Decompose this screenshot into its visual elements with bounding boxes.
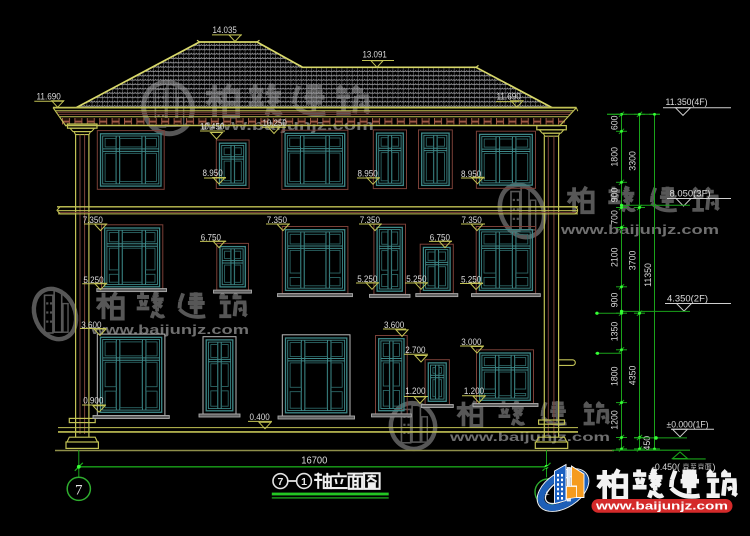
svg-text:1350: 1350: [610, 322, 620, 342]
svg-text:16700: 16700: [301, 456, 327, 467]
svg-text:7: 7: [75, 483, 83, 499]
svg-text:1800: 1800: [610, 366, 620, 386]
svg-text:±0.000(1F): ±0.000(1F): [667, 419, 709, 429]
svg-text:11.690: 11.690: [497, 92, 521, 102]
svg-text:10.450: 10.450: [200, 121, 224, 131]
svg-text:10.250: 10.250: [263, 118, 287, 128]
svg-text:3.000: 3.000: [461, 337, 481, 347]
svg-text:1: 1: [301, 476, 307, 488]
svg-text:0.900: 0.900: [83, 396, 103, 406]
svg-text:900: 900: [610, 187, 620, 202]
svg-text:8.050(3F): 8.050(3F): [670, 188, 711, 198]
svg-text:13.091: 13.091: [363, 50, 387, 60]
svg-text:1800: 1800: [610, 147, 620, 167]
svg-text:): ): [713, 462, 716, 472]
svg-text:www.baijunjz.com: www.baijunjz.com: [595, 501, 729, 513]
svg-text:www.baijunjz.com: www.baijunjz.com: [90, 323, 249, 337]
svg-text:0.400: 0.400: [250, 412, 270, 422]
svg-text:900: 900: [610, 293, 620, 308]
svg-text:4.350(2F): 4.350(2F): [667, 293, 708, 303]
svg-text:www.baijunjz.com: www.baijunjz.com: [448, 432, 610, 444]
svg-text:700: 700: [610, 210, 620, 225]
svg-text:11350: 11350: [643, 263, 653, 287]
svg-text:11.350(4F): 11.350(4F): [666, 97, 708, 107]
svg-text:3700: 3700: [628, 251, 638, 271]
svg-text:1200: 1200: [610, 410, 620, 430]
svg-text:2100: 2100: [610, 247, 620, 267]
svg-text:4350: 4350: [628, 366, 638, 386]
svg-text:7: 7: [277, 476, 283, 488]
svg-text:1.200: 1.200: [464, 386, 484, 396]
svg-text:1.200: 1.200: [405, 386, 425, 396]
svg-text:3300: 3300: [628, 151, 638, 171]
svg-text:8.950: 8.950: [358, 168, 378, 178]
svg-text:600: 600: [610, 115, 620, 130]
svg-text:8.950: 8.950: [203, 168, 223, 178]
svg-text:11.690: 11.690: [37, 91, 61, 101]
svg-text:14.035: 14.035: [213, 25, 237, 35]
